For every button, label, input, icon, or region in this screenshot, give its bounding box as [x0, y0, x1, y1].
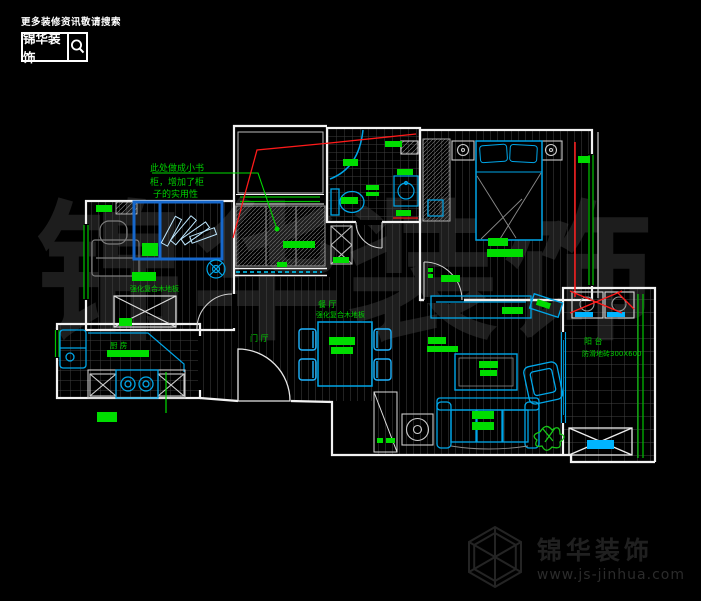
- label-bar: [488, 238, 508, 246]
- search-icon: [69, 34, 86, 60]
- label-bar: [480, 370, 497, 376]
- label-bar: [377, 438, 383, 443]
- note-line2: 柜，增加了柜: [150, 176, 204, 188]
- wardrobe-hatch: [236, 206, 325, 266]
- note-line3: 子的实用性: [153, 188, 198, 200]
- label-bar: [329, 337, 355, 345]
- cube-logo-icon: [463, 525, 527, 589]
- screenshot: 锦华装饰 更多装修资讯敬请搜索 锦华装饰: [0, 0, 701, 601]
- floor-plan: 强化复合木地板: [0, 0, 701, 601]
- label-bar: [119, 318, 132, 326]
- header-tagline: 更多装修资讯敬请搜索: [21, 14, 121, 28]
- label-bar: [472, 422, 494, 430]
- label-bar: [142, 243, 158, 256]
- label-bar: [427, 346, 458, 352]
- label-bar: [428, 337, 446, 344]
- dining-name-label: 餐 厅: [318, 300, 337, 309]
- label-bar: [472, 411, 494, 419]
- footer-website: www.js-jinhua.com: [537, 567, 685, 583]
- label-bar-cyan: [587, 440, 614, 449]
- kitchen-name-label: 厨 房: [110, 340, 127, 350]
- note-line1: 此处做成小书: [150, 162, 204, 174]
- study-floor-label: 强化复合木地板: [130, 284, 179, 293]
- label-bar: [331, 347, 353, 354]
- label-bar: [132, 272, 156, 281]
- bed: [476, 141, 542, 240]
- label-bar: [107, 350, 149, 357]
- wardrobe-hatch: [423, 139, 450, 221]
- label-bar: [502, 307, 523, 314]
- label-bar: [96, 205, 112, 212]
- label-bar: [479, 361, 498, 368]
- brand-logo-box: 锦华装饰: [21, 32, 88, 62]
- floor-hatching: [58, 129, 654, 461]
- label-bar: [578, 156, 590, 163]
- label-bar: [341, 197, 358, 204]
- footer-logo: 锦华装饰 www.js-jinhua.com: [463, 525, 685, 589]
- label-bar: [386, 438, 395, 443]
- foyer-name-label: 门 厅: [250, 333, 269, 343]
- footer-brand-name: 锦华装饰: [537, 531, 685, 567]
- label-bar-cyan: [607, 312, 625, 317]
- label-bar: [487, 249, 523, 257]
- label-bar-cyan: [575, 312, 593, 317]
- balcony-floor-label: 防滑地砖300X600: [582, 349, 642, 358]
- leader-dot: [275, 227, 280, 232]
- duct-hatch: [401, 141, 418, 154]
- header-banner: 更多装修资讯敬请搜索 锦华装饰: [21, 14, 121, 62]
- brand-name: 锦华装饰: [23, 34, 67, 60]
- balcony-name-label: 阳 台: [584, 336, 603, 346]
- dining-floor-label: 强化复合木地板: [316, 310, 365, 319]
- label-bar: [97, 412, 117, 422]
